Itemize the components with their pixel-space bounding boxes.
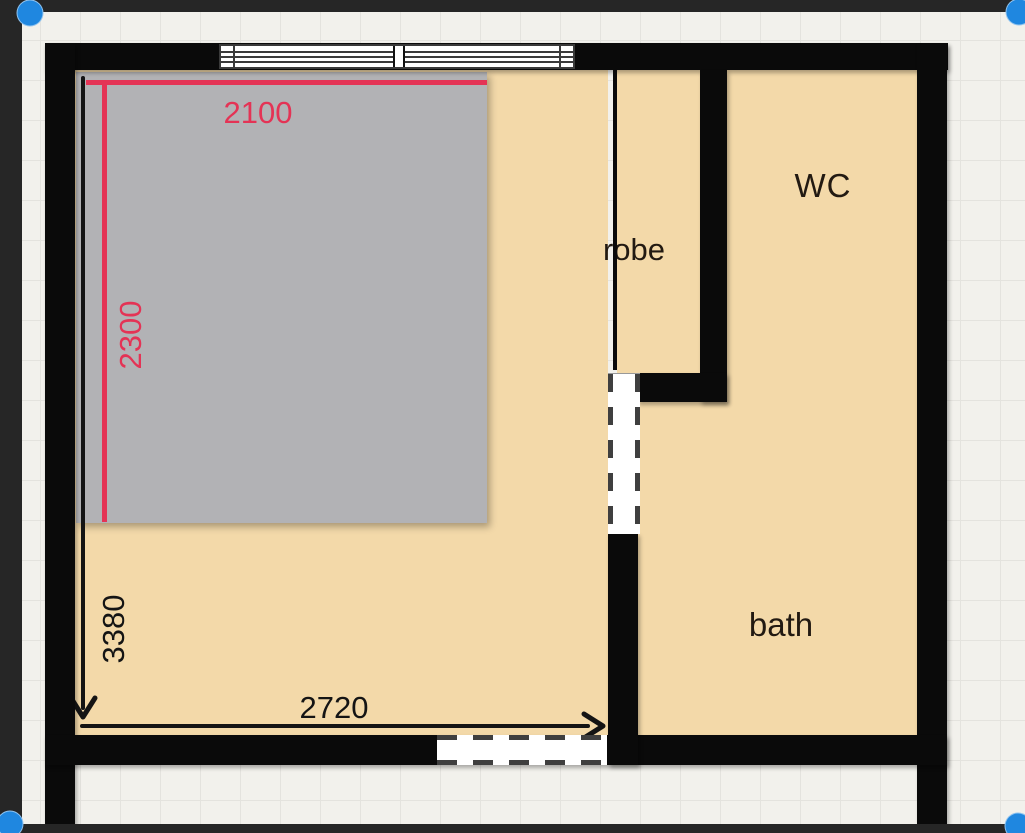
door-bottom-dash-top xyxy=(437,735,607,740)
corner-handle-top-right[interactable] xyxy=(1006,0,1025,26)
door-bottom-dash-bottom xyxy=(437,760,607,765)
door-pocket[interactable] xyxy=(608,373,640,534)
corner-handle-bottom-right[interactable] xyxy=(1005,813,1025,833)
floor-bath-extension[interactable] xyxy=(638,402,727,735)
wall-left[interactable] xyxy=(45,43,75,826)
frame-left xyxy=(0,0,22,833)
robe-partition-line[interactable] xyxy=(613,70,617,370)
wall-robe-wc-divider[interactable] xyxy=(700,70,727,402)
dim-line-room-depth xyxy=(81,76,85,710)
wall-robe-bottom[interactable] xyxy=(637,373,727,402)
corner-handle-top-left[interactable] xyxy=(17,0,44,27)
dim-label-room-depth: 3380 xyxy=(96,595,132,664)
bed-rect[interactable] xyxy=(76,72,487,523)
dim-line-bed-width xyxy=(86,80,487,85)
door-pocket-dash-right xyxy=(635,374,640,534)
dim-label-bed-width: 2100 xyxy=(224,95,293,131)
frame-top xyxy=(0,0,1025,12)
wall-bath-divider[interactable] xyxy=(608,533,638,765)
floor-robe[interactable] xyxy=(617,70,700,373)
room-label-bath: bath xyxy=(749,606,813,644)
wall-right[interactable] xyxy=(917,43,947,826)
floorplan-canvas[interactable]: 2100 2300 3380 2720 WC bath robe xyxy=(0,0,1025,833)
door-pocket-dash-left xyxy=(608,374,613,534)
window-jamb-right xyxy=(559,46,561,67)
dim-label-room-width: 2720 xyxy=(300,690,369,726)
window-jamb-left xyxy=(233,46,235,67)
window-top[interactable] xyxy=(219,44,575,69)
frame-bottom xyxy=(0,824,1025,833)
dim-line-bed-depth xyxy=(102,85,107,522)
door-bottom-sliding[interactable] xyxy=(437,735,607,765)
dim-label-bed-depth: 2300 xyxy=(113,301,149,370)
window-mullion xyxy=(393,46,405,67)
room-label-wc: WC xyxy=(795,167,852,205)
